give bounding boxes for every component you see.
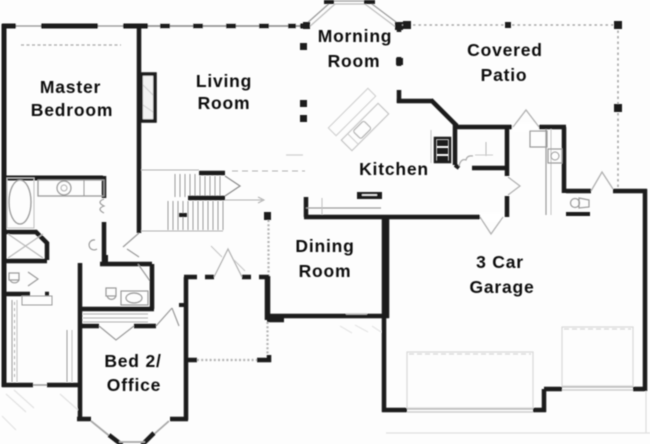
svg-text:Covered: Covered bbox=[467, 40, 543, 60]
svg-text:3 Car: 3 Car bbox=[476, 252, 524, 272]
svg-text:Patio: Patio bbox=[481, 65, 528, 85]
svg-text:Office: Office bbox=[107, 375, 161, 395]
svg-text:Room: Room bbox=[328, 51, 381, 71]
svg-text:Bed 2/: Bed 2/ bbox=[104, 351, 161, 371]
svg-text:Living: Living bbox=[196, 71, 252, 91]
svg-text:Bedroom: Bedroom bbox=[31, 100, 113, 120]
svg-text:Kitchen: Kitchen bbox=[359, 159, 429, 179]
svg-text:Morning: Morning bbox=[318, 26, 393, 46]
svg-text:Room: Room bbox=[299, 261, 352, 281]
svg-text:Garage: Garage bbox=[469, 277, 534, 297]
svg-text:Room: Room bbox=[198, 93, 251, 113]
svg-text:Master: Master bbox=[40, 77, 101, 97]
svg-text:Dining: Dining bbox=[295, 236, 354, 256]
